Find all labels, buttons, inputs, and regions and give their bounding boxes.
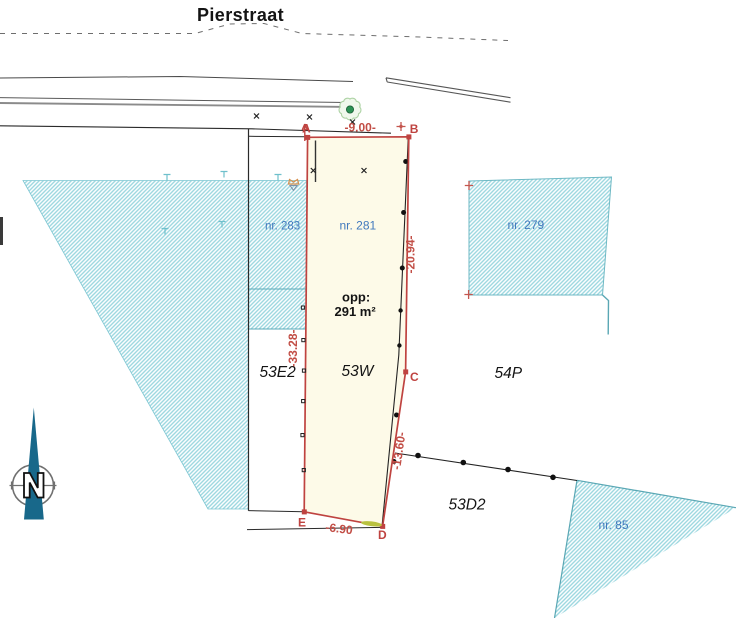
svg-text:53W: 53W	[342, 363, 375, 380]
svg-text:E: E	[298, 516, 306, 530]
svg-text:Pierstraat: Pierstraat	[197, 5, 284, 25]
svg-text:A: A	[302, 122, 311, 136]
svg-text:B: B	[410, 122, 419, 136]
svg-text:opp:: opp:	[342, 290, 370, 305]
svg-text:nr. 281: nr. 281	[340, 219, 377, 233]
svg-text:-20.94-: -20.94-	[404, 235, 418, 273]
svg-text:53E2: 53E2	[260, 364, 297, 381]
svg-text:C: C	[410, 370, 419, 384]
svg-text:-9.00-: -9.00-	[345, 121, 376, 135]
svg-text:291 m²: 291 m²	[335, 304, 377, 319]
svg-text:54P: 54P	[495, 365, 523, 382]
svg-text:nr. 283: nr. 283	[265, 221, 300, 233]
svg-text:53D2: 53D2	[449, 497, 486, 514]
svg-text:-6.90: -6.90	[325, 520, 354, 537]
svg-text:-33.28-: -33.28-	[286, 329, 300, 367]
svg-text:nr. 279: nr. 279	[508, 218, 545, 232]
svg-text:D: D	[378, 528, 387, 542]
svg-text:nr. 85: nr. 85	[599, 518, 629, 532]
